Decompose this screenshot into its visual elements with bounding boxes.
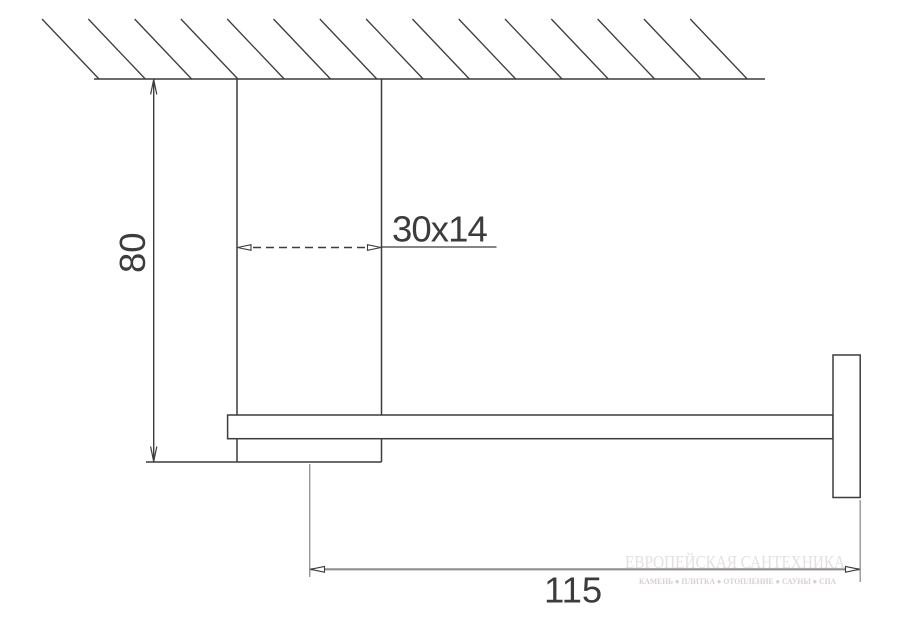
svg-text:80: 80 — [112, 232, 153, 273]
svg-text:115: 115 — [544, 570, 602, 611]
svg-text:30x14: 30x14 — [392, 209, 488, 250]
svg-text:КАМЕНЬ ● ПЛИТКА ● ОТОПЛЕНИЕ ●: КАМЕНЬ ● ПЛИТКА ● ОТОПЛЕНИЕ ● САУНЫ ● СП… — [639, 577, 836, 586]
